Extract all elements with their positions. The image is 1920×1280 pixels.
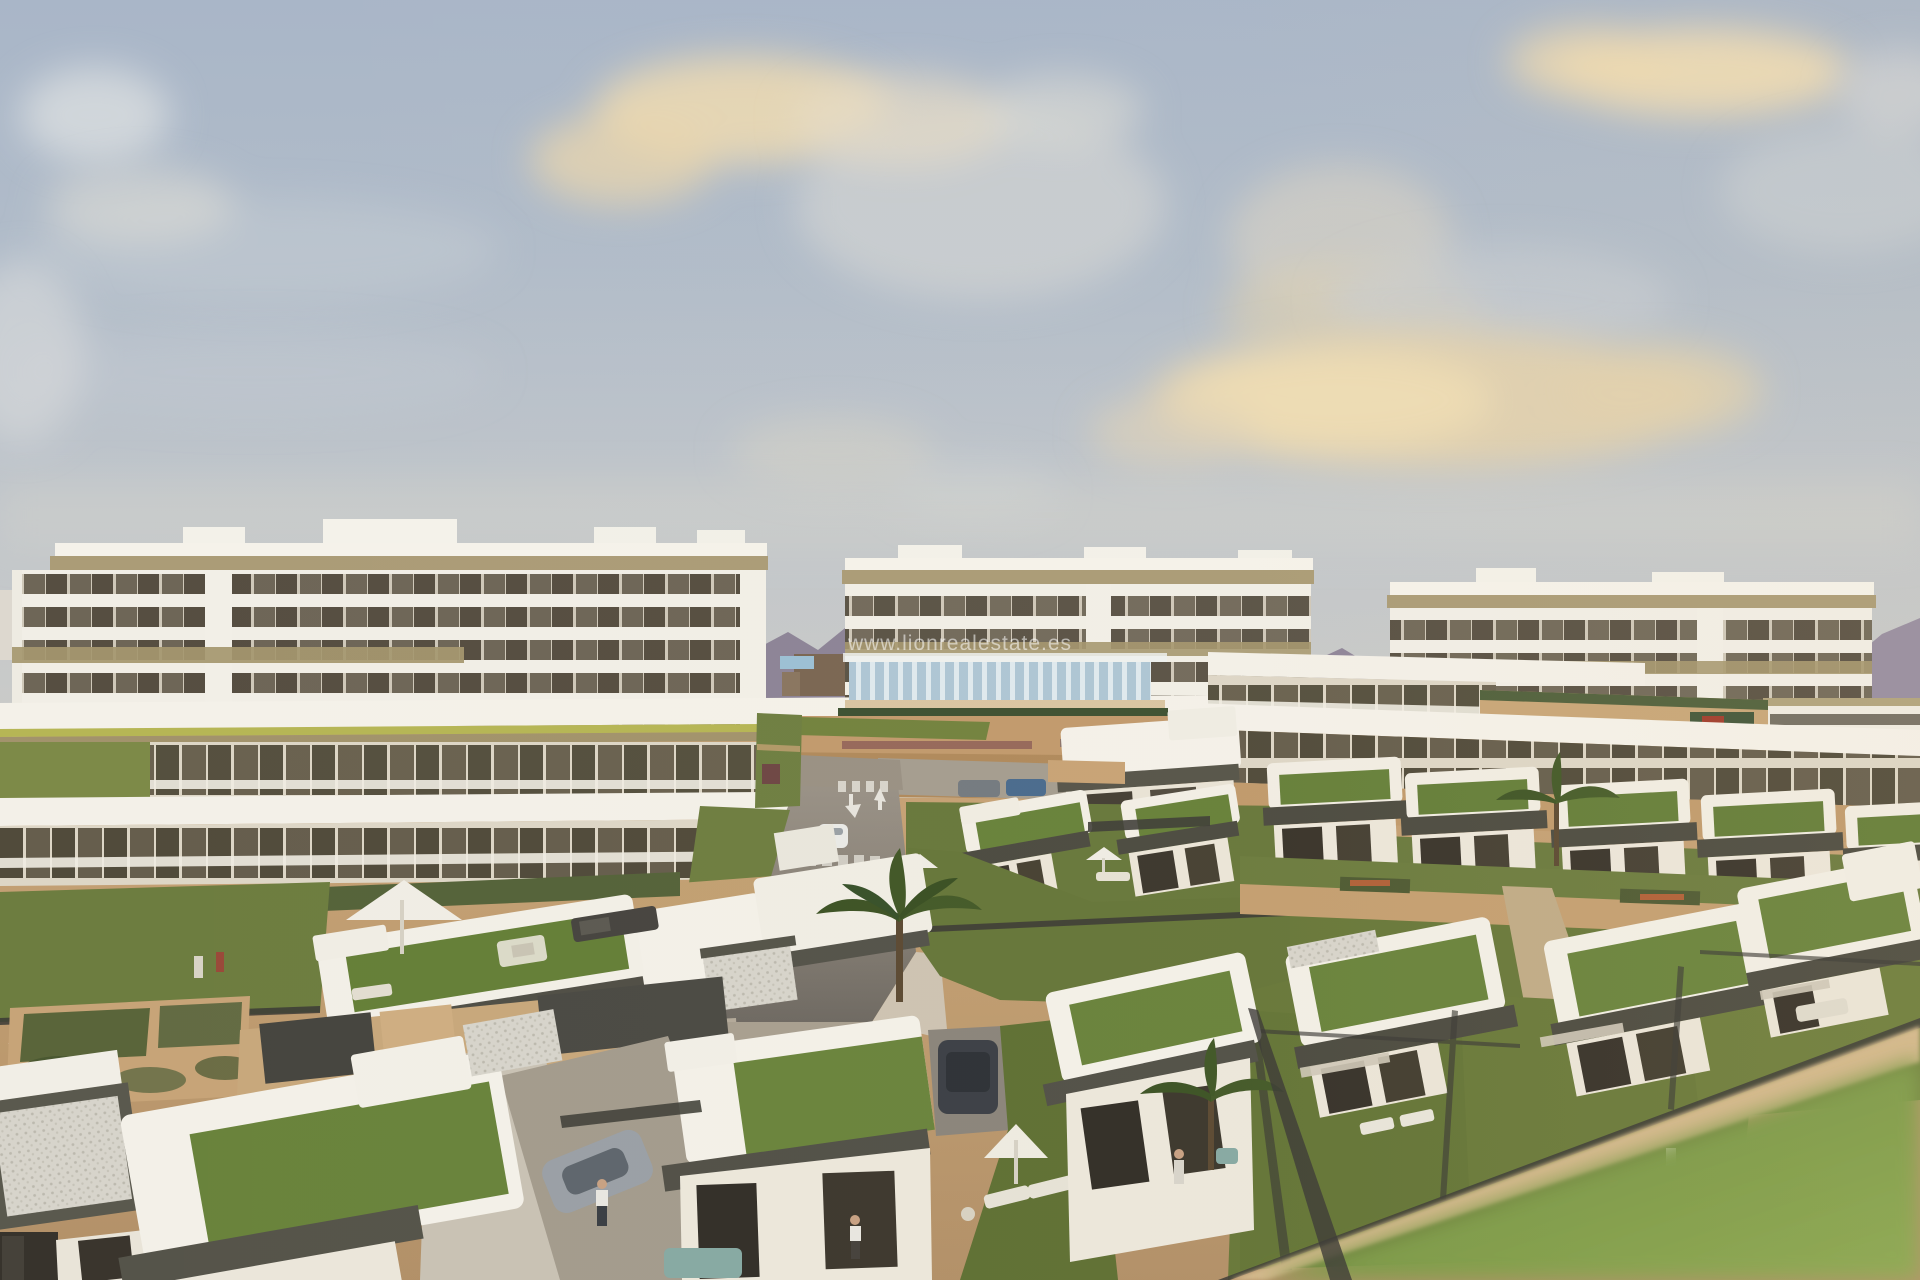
- svg-text:www.lionrealestate.es: www.lionrealestate.es: [847, 632, 1072, 655]
